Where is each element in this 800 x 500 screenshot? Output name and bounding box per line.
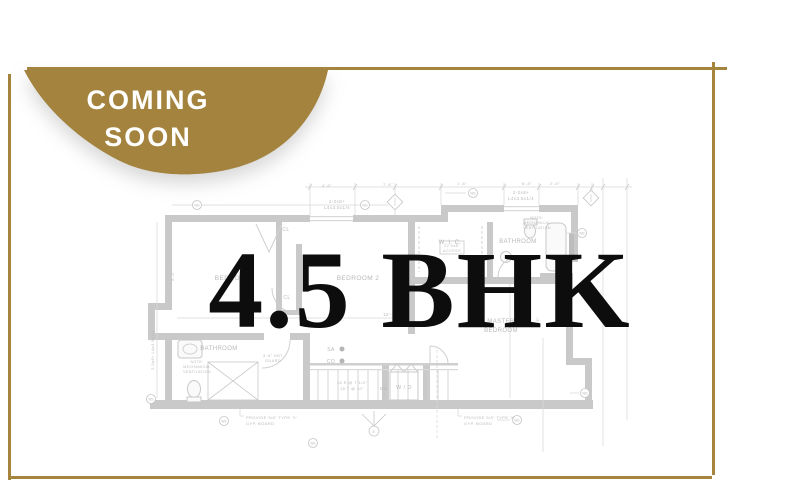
plan-label: 2-2x8+ xyxy=(329,199,345,204)
plan-label: MECHANICAL xyxy=(523,221,551,225)
plan-label: MECHANICAL xyxy=(183,365,211,369)
plan-label: NOTE: xyxy=(191,360,204,364)
coming-soon-badge: COMING SOON xyxy=(10,70,330,185)
plan-label: PROVIDE 5/8" TYPE 'X' xyxy=(464,415,515,420)
ws-symbol-label: WS xyxy=(221,419,226,423)
plan-label: E xyxy=(373,430,376,434)
plan-label: NOTE: xyxy=(531,216,544,220)
plan-label: 15 T @ 10" xyxy=(340,386,364,391)
plan-label: 3'-6" HGT xyxy=(263,354,284,358)
plan-label: 1'-6" xyxy=(457,181,467,186)
plan-label: 16 R @ 7 1/4" xyxy=(337,380,367,385)
plan-label: 2-2x8+ xyxy=(513,190,529,195)
plan-label: DN xyxy=(380,386,388,392)
unit-type-title: 4.5 BHK xyxy=(40,235,800,345)
plan-label: VENTILATION xyxy=(183,370,211,374)
ws-symbol-label: WS xyxy=(470,191,475,195)
coming-soon-card: WSWSWSWSWSWSWSWSWS BEDROOMBEDROOM 2W. I.… xyxy=(0,0,800,500)
plan-label: L4x3.5x1/4 xyxy=(508,196,534,201)
plan-label: 7'-6" xyxy=(383,182,393,187)
plan-label: W / D xyxy=(396,385,412,391)
plan-label: PROVIDE 5/8" TYPE 'X' xyxy=(246,415,297,420)
badge-line1: COMING xyxy=(10,82,286,119)
ws-symbol-label: WS xyxy=(148,397,153,401)
plan-label: GYP. BOARD xyxy=(246,421,274,426)
plan-label: CO xyxy=(327,359,335,365)
ws-symbol-label: WS xyxy=(362,203,367,207)
plan-label: GYP. BOARD xyxy=(464,421,492,426)
plan-label: L4x3.5x1/4 xyxy=(324,205,350,210)
plan-label: GUARD xyxy=(265,359,281,363)
plan-label: 6'-8" xyxy=(522,181,532,186)
plan-label: 2'-6" xyxy=(550,181,560,186)
badge-line2: SOON xyxy=(10,119,286,156)
ws-symbol-label: WS xyxy=(194,203,199,207)
ws-symbol-label: WS xyxy=(582,391,587,395)
ws-symbol-label: WS xyxy=(310,441,315,445)
